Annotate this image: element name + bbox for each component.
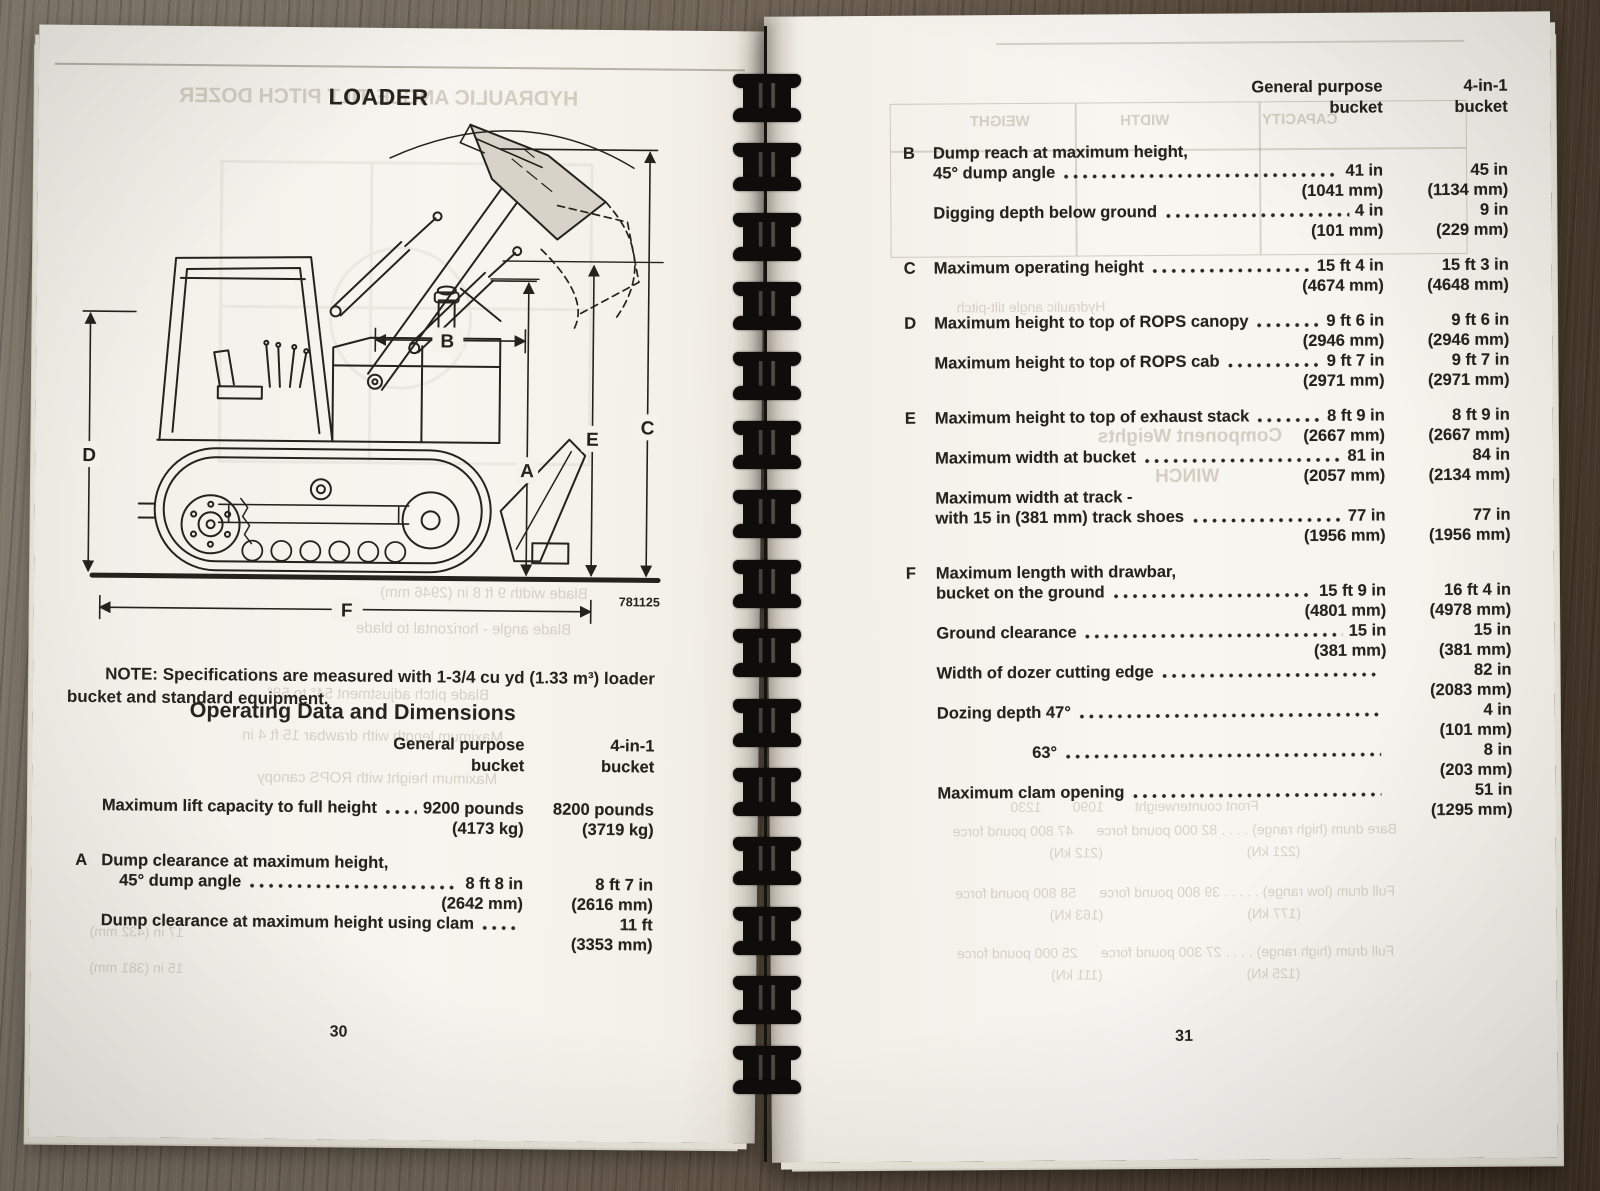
binding-ring [733, 143, 801, 191]
binding-ring-waist [743, 846, 791, 876]
gp-bucket-value: (4173 kg) [452, 819, 524, 840]
four-in-one-value [1385, 500, 1510, 501]
four-in-one-value: (2971 mm) [1384, 370, 1509, 391]
dot-leader [385, 803, 417, 817]
four-in-one-value: (2946 mm) [1384, 330, 1509, 351]
bleed-through-text-layer: HYDRAULIC ANGLE TILT PITCH DOZERBlade wi… [39, 25, 765, 32]
gp-bucket-value: (2667 mm) [1303, 425, 1385, 446]
comb-binding [733, 0, 801, 1191]
gp-bucket-value: (101 mm) [1311, 220, 1384, 241]
four-in-one-value: 8 in [1387, 740, 1512, 761]
four-in-one-value: 9 ft 6 in [1384, 310, 1509, 331]
row-label: Dump reach at maximum height, [933, 142, 1188, 164]
ghost-text: Full drum (low range) . . . . . 39 800 p… [910, 882, 1440, 902]
column-spacer [101, 945, 523, 949]
row-label: Maximum length with drawbar, [936, 562, 1176, 584]
row-letter: D [904, 314, 934, 334]
row-label: Maximum width at bucket [935, 447, 1136, 468]
column-spacer [937, 735, 1387, 738]
column-spacer [935, 386, 1303, 389]
four-in-one-value: 8200 pounds [524, 799, 654, 820]
dot-leader [1165, 206, 1349, 221]
loader-dimension-diagram: D C E A B F 781125 [67, 105, 712, 651]
ghost-text: Full drum (high range) . . . . 27 300 po… [910, 942, 1440, 962]
gp-bucket-value: 8 ft 8 in [465, 874, 523, 895]
column-spacer [934, 236, 1312, 239]
gp-bucket-value: 15 ft 4 in [1317, 255, 1384, 275]
general-purpose-bucket-header: General purpose bucket [1251, 76, 1382, 119]
four-in-one-value: 82 in [1387, 660, 1512, 681]
four-in-one-value: 77 in [1385, 505, 1510, 526]
four-in-one-bucket-header: 4-in-1 bucket [524, 735, 654, 778]
four-in-one-value: (1956 mm) [1386, 525, 1511, 546]
row-label: 63° [937, 743, 1057, 764]
spec-rows: BDump reach at maximum height,45° dump a… [903, 140, 1513, 824]
four-in-one-value: 8 ft 9 in [1385, 405, 1510, 426]
operating-data-table: General purpose bucket 4-in-1 bucket Max… [74, 731, 654, 956]
four-in-one-value: (3353 mm) [522, 934, 652, 955]
column-spacer [934, 291, 1302, 294]
column-spacer [938, 815, 1388, 818]
dot-leader [1162, 665, 1381, 681]
gp-bucket-value: 41 in [1345, 160, 1383, 180]
gp-bucket-value: (2642 mm) [441, 893, 523, 914]
four-in-one-value: 51 in [1387, 780, 1512, 801]
row-label: bucket on the ground [936, 582, 1105, 603]
gp-bucket-value: 9200 pounds [423, 798, 524, 819]
dim-label-e: E [586, 430, 599, 451]
row-label: Dump clearance at maximum height using c… [101, 910, 474, 934]
binding-ring-waist [743, 430, 791, 460]
four-in-one-value: 15 ft 3 in [1384, 255, 1509, 276]
four-in-one-value [523, 869, 653, 870]
four-in-one-value: 84 in [1385, 445, 1510, 466]
dim-label-b: B [440, 331, 454, 352]
binding-ring-waist [743, 152, 791, 182]
four-in-one-value: 11 ft [523, 914, 653, 935]
dot-leader [1085, 626, 1343, 642]
binding-ring [733, 629, 801, 677]
spec-row: (2057 mm)(2134 mm) [905, 465, 1510, 489]
dot-leader [1132, 785, 1381, 801]
ghost-text: (177 kN) (163 kN) [910, 904, 1440, 924]
row-label: 45° dump angle [101, 870, 241, 891]
manual-page-30: HYDRAULIC ANGLE TILT PITCH DOZERBlade wi… [29, 25, 766, 1144]
general-purpose-bucket-header: General purpose bucket [393, 734, 525, 777]
binding-ring-waist [743, 499, 791, 529]
dot-leader [1113, 586, 1313, 601]
gp-bucket-value: 8 ft 9 in [1327, 405, 1385, 425]
binding-ring [733, 74, 801, 122]
ghost-text: 15 in (381 mm) [36, 959, 236, 977]
four-in-one-value: (4648 mm) [1384, 275, 1509, 296]
binding-ring [733, 560, 801, 608]
column-spacer [933, 196, 1301, 199]
dim-label-d: D [82, 445, 96, 466]
manual-page-31: WEIGHTWIDTHCAPACITYHydraulic angle tilt-… [764, 11, 1558, 1162]
four-in-one-value: 45 in [1383, 160, 1508, 181]
four-in-one-value: (381 mm) [1386, 640, 1511, 661]
row-label: Ground clearance [936, 623, 1076, 644]
ghost-text: (125 kN) (111 kN) [911, 964, 1441, 984]
section-heading: Operating Data and Dimensions [33, 697, 673, 728]
column-headers: General purpose bucket 4-in-1 bucket [76, 731, 654, 779]
four-in-one-value: (203 mm) [1387, 760, 1512, 781]
binding-ring [733, 490, 801, 538]
spec-row: (2971 mm)(2971 mm) [905, 370, 1510, 394]
gp-bucket-value: 15 ft 9 in [1319, 580, 1386, 600]
binding-ring-waist [743, 361, 791, 391]
column-spacer [1176, 575, 1386, 576]
row-letter: B [903, 144, 933, 164]
dot-leader [1257, 316, 1321, 330]
binding-ring-waist [743, 638, 791, 668]
four-in-one-value: (1295 mm) [1387, 800, 1512, 821]
spec-rows: Maximum lift capacity to full height9200… [74, 795, 653, 956]
gp-bucket-value: (381 mm) [1314, 640, 1387, 661]
dim-label-a: A [520, 461, 534, 482]
gp-bucket-value: 4 in [1355, 200, 1384, 220]
row-label: Maximum clam opening [937, 782, 1124, 803]
gp-bucket-value: 15 in [1349, 620, 1387, 640]
column-spacer [388, 868, 523, 869]
row-letter: E [905, 409, 935, 429]
row-label: Maximum lift capacity to full height [102, 795, 377, 818]
row-label: Maximum width at track - [935, 487, 1132, 508]
row-label: Width of dozer cutting edge [937, 662, 1154, 684]
dot-leader [1257, 411, 1321, 425]
dot-leader [1227, 356, 1320, 371]
loader-drawing [92, 121, 664, 580]
row-label: Maximum height to top of exhaust stack [935, 406, 1250, 428]
column-spacer [936, 616, 1304, 619]
binding-ring-waist [743, 222, 791, 252]
binding-ring-waist [743, 1055, 791, 1085]
ghost-text: (221 kN) (212 kN) [910, 842, 1440, 862]
column-spacer [101, 905, 441, 908]
spec-row: (1295 mm) [908, 800, 1513, 824]
binding-ring-waist [743, 83, 791, 113]
binding-ring-waist [743, 985, 791, 1015]
dot-leader [1079, 705, 1381, 721]
four-in-one-value: (1134 mm) [1383, 180, 1508, 201]
dot-leader [1144, 451, 1342, 466]
row-letter: C [904, 259, 934, 279]
binding-ring [733, 213, 801, 261]
dot-leader [249, 877, 459, 893]
gp-bucket-value: (2946 mm) [1303, 330, 1385, 351]
binding-ring [733, 907, 801, 955]
binding-ring [733, 837, 801, 885]
four-in-one-value: 15 in [1386, 620, 1511, 641]
column-spacer [936, 656, 1314, 659]
dim-label-c: C [641, 418, 655, 439]
four-in-one-value: (101 mm) [1387, 720, 1512, 741]
photo-of-open-manual: { "left_page": { "title": "LOADER", "fig… [0, 0, 1600, 1191]
four-in-one-value: (4978 mm) [1386, 600, 1511, 621]
column-spacer [102, 830, 452, 833]
binding-ring [733, 1046, 801, 1094]
dot-leader [1192, 511, 1342, 526]
operating-data-table-continued: General purpose bucket 4-in-1 bucket BDu… [902, 76, 1512, 824]
row-label: 45° dump angle [933, 163, 1055, 184]
gp-bucket-value: (1041 mm) [1302, 180, 1384, 201]
spec-row: (3353 mm) [74, 930, 652, 956]
binding-ring [733, 421, 801, 469]
gp-bucket-value: (1956 mm) [1304, 525, 1386, 546]
four-in-one-value: 9 in [1383, 200, 1508, 221]
gp-bucket-value: (4674 mm) [1302, 275, 1384, 296]
four-in-one-value: (2083 mm) [1387, 680, 1512, 701]
row-label: Digging depth below ground [933, 202, 1157, 224]
column-spacer [937, 695, 1387, 698]
gp-bucket-value: 81 in [1347, 445, 1385, 465]
row-label: with 15 in (381 mm) track shoes [935, 507, 1184, 529]
binding-ring [733, 768, 801, 816]
gp-bucket-value: (2971 mm) [1303, 370, 1385, 391]
four-in-one-value: 16 ft 4 in [1386, 580, 1511, 601]
dot-leader [1065, 745, 1381, 761]
binding-ring-waist [743, 291, 791, 321]
dim-label-f: F [341, 600, 353, 621]
four-in-one-value: (2616 mm) [523, 894, 653, 915]
dot-leader [1152, 261, 1311, 276]
binding-ring-waist [743, 916, 791, 946]
spec-row: (101 mm)(229 mm) [903, 220, 1508, 244]
four-in-one-value: (229 mm) [1383, 220, 1508, 241]
page-header-rule [996, 40, 1464, 45]
row-label: Maximum operating height [934, 257, 1144, 278]
column-spacer [937, 775, 1387, 778]
note-label: NOTE: [105, 664, 158, 684]
column-spacer [935, 481, 1303, 484]
dot-leader [1063, 166, 1339, 182]
page-header-rule [55, 63, 745, 72]
column-spacer [1133, 500, 1386, 502]
spec-row: (1956 mm)(1956 mm) [906, 525, 1511, 549]
column-spacer [936, 541, 1304, 544]
column-headers: General purpose bucket 4-in-1 bucket [902, 76, 1507, 122]
row-label: Maximum height to top of ROPS canopy [934, 311, 1249, 333]
binding-ring-waist [743, 569, 791, 599]
gp-bucket-value: (2057 mm) [1304, 465, 1386, 486]
bleed-through-text-layer: WEIGHTWIDTHCAPACITYHydraulic angle tilt-… [764, 11, 1550, 16]
row-label: Dozing depth 47° [937, 703, 1071, 724]
four-in-one-value [1383, 155, 1508, 156]
binding-ring [733, 699, 801, 747]
gp-bucket-value: 77 in [1348, 505, 1386, 525]
page-number: 30 [330, 1023, 348, 1041]
gp-bucket-value: 9 ft 6 in [1326, 310, 1384, 330]
column-spacer [934, 346, 1302, 349]
page-number: 31 [1175, 1028, 1193, 1046]
four-in-one-value: (2134 mm) [1385, 465, 1510, 486]
row-letter: F [906, 564, 936, 584]
four-in-one-value: 8 ft 7 in [523, 874, 653, 895]
binding-ring [733, 282, 801, 330]
four-in-one-value: (2667 mm) [1385, 425, 1510, 446]
gp-bucket-value: (4801 mm) [1304, 600, 1386, 621]
row-label: Maximum height to top of ROPS cab [934, 352, 1219, 374]
four-in-one-value: 9 ft 7 in [1384, 350, 1509, 371]
four-in-one-bucket-header: 4-in-1 bucket [1382, 76, 1507, 119]
column-spacer [935, 441, 1303, 444]
spec-row: (4674 mm)(4648 mm) [904, 275, 1509, 299]
four-in-one-value [1386, 575, 1511, 576]
binding-ring-waist [743, 708, 791, 738]
gp-bucket-value: 9 ft 7 in [1327, 350, 1385, 370]
row-label: Dump clearance at maximum height, [101, 850, 388, 873]
binding-ring [733, 352, 801, 400]
binding-ring [733, 976, 801, 1024]
column-spacer [1188, 155, 1383, 156]
four-in-one-value: (3719 kg) [524, 819, 654, 840]
binding-ring-waist [743, 777, 791, 807]
dot-leader [482, 919, 517, 933]
figure-number: 781125 [619, 595, 660, 609]
four-in-one-value: 4 in [1387, 700, 1512, 721]
row-letter: A [75, 850, 101, 870]
